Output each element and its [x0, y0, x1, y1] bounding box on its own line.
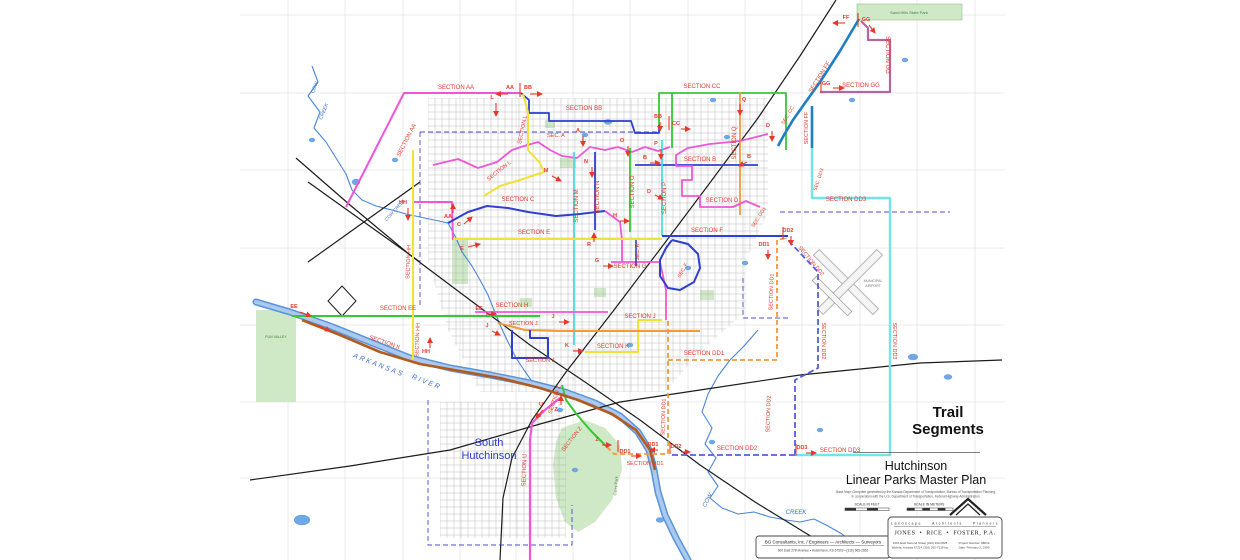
trail-marker-label: C	[457, 222, 461, 228]
scale-meters-seg	[938, 508, 946, 511]
section-label: SECTION GG	[884, 36, 890, 74]
section-label: SECTION HH	[405, 245, 412, 279]
pond	[572, 468, 578, 472]
pond	[724, 135, 730, 139]
section-label: SECTION FF	[804, 111, 810, 144]
trail-marker-label: DD1	[647, 442, 658, 448]
trail-marker-label: GG	[822, 81, 831, 87]
map-text: South	[475, 437, 504, 449]
trail-marker-arrow	[468, 244, 480, 247]
section-label: SECTION D	[706, 198, 739, 204]
jrf-project-number: Project Number: 98013	[959, 541, 990, 545]
map-text: CREEK	[786, 510, 808, 516]
trail-section-DD3	[795, 148, 890, 455]
map-text: MUNICIPAL	[864, 279, 883, 283]
jrf-name: JONES • RICE • FOSTER, P.A.	[894, 530, 995, 537]
trail-marker-label: D	[647, 189, 651, 195]
scale-meters-seg	[922, 508, 930, 511]
section-label: SECTION U	[521, 454, 528, 487]
trail-marker-label: EE	[475, 306, 483, 312]
north-arrow-icon	[950, 499, 986, 515]
section-label: SECTION DD1	[684, 351, 725, 357]
map-text: CREEK	[318, 102, 330, 121]
section-label: SECTION DD3	[820, 448, 861, 454]
pond	[656, 518, 664, 523]
trail-marker-label: DD1	[758, 242, 769, 248]
trail-marker-label: DD3	[796, 445, 807, 451]
section-label: SECTION BB	[566, 106, 602, 112]
plan-title-city: Hutchinson	[885, 459, 948, 473]
trail-section-A	[433, 142, 670, 168]
trail-marker-label: AA	[506, 85, 514, 91]
section-label: SECTION EE	[380, 306, 416, 312]
section-label: SEC. DD3	[813, 168, 826, 192]
trail-section-AA	[413, 202, 453, 240]
pond	[908, 354, 918, 360]
scale-feet-label: SCALE IN FEET	[854, 503, 879, 507]
map-text: RIVER	[411, 374, 443, 392]
pond	[709, 440, 715, 444]
pond	[710, 98, 716, 102]
section-label: SECTION DD2	[820, 323, 826, 360]
trail-section-C	[448, 206, 605, 223]
bg-consultants-address: 600 East 27th Avenue • Hutchinson, KS 67…	[778, 549, 869, 553]
park-area	[700, 290, 714, 300]
section-label: SECTION C	[502, 197, 535, 203]
pond	[742, 261, 748, 265]
section-label: SECTION FF	[808, 60, 832, 94]
jrf-tagline: Landscape Architects Planners	[891, 522, 999, 526]
map-text: Sand Hills State Park	[890, 10, 928, 15]
section-label: SEC. CC	[780, 105, 796, 126]
trail-marker-label: FF	[843, 15, 850, 21]
trail-marker-label: J	[485, 323, 488, 329]
base-map-note-2: in cooperation with the U.S. Department …	[852, 495, 981, 499]
section-label: SECTION P	[662, 182, 668, 214]
section-label: SECTION DD2	[717, 446, 758, 452]
trail-marker-label: HH	[399, 200, 407, 206]
trail-marker-label: M	[544, 168, 549, 174]
section-label: SEC. A	[547, 133, 565, 139]
trail-marker-label: DD2	[670, 444, 681, 450]
section-label: SECTION Q	[732, 126, 738, 159]
trail-marker-label: P	[654, 141, 658, 147]
section-label: SECTION AA	[396, 123, 418, 158]
trail-marker-label: EE	[290, 304, 298, 310]
trail-marker-label: D	[766, 123, 770, 129]
section-label: SECTION G	[613, 264, 646, 270]
section-label: SECTION DD3	[826, 197, 867, 203]
trail-section-BB	[521, 93, 659, 133]
trail-marker-label: HH	[422, 349, 430, 355]
section-label: SECTION DD1	[768, 273, 775, 310]
trail-marker-arrow	[464, 217, 472, 224]
section-label: SEC. F	[677, 262, 690, 279]
section-label: SECTION H	[496, 303, 529, 309]
trail-marker-arrow	[552, 176, 561, 181]
trail-marker-label: CC	[672, 121, 680, 127]
pond	[849, 98, 855, 102]
pond	[557, 408, 563, 412]
plan-title-name: Linear Parks Master Plan	[846, 473, 986, 487]
trail-marker-label: E	[460, 246, 464, 252]
pond	[294, 515, 310, 525]
trail-marker-label: K	[565, 343, 569, 349]
section-label: SECTION DD1	[627, 461, 664, 467]
map-text: AIRPORT	[865, 284, 881, 288]
map-title-line2: Segments	[912, 421, 984, 438]
trail-marker-label: DD1	[619, 449, 630, 455]
jrf-date: Date: February 2, 1999	[959, 546, 990, 550]
creek	[702, 330, 866, 558]
trail-marker-label: G	[595, 258, 599, 264]
base-map-note-1: Base Map: Computer generated by the Kans…	[836, 490, 996, 494]
park-area	[256, 310, 296, 402]
scale-feet-seg	[845, 508, 856, 511]
pond	[392, 158, 398, 162]
pond	[817, 428, 823, 432]
trail-marker-label: BB	[524, 85, 532, 91]
trail-marker-arrow	[869, 25, 875, 33]
section-label: SECTION DD3	[891, 323, 897, 360]
map-text: FUN VALLEY	[265, 335, 287, 339]
map-text: Hutchinson	[461, 450, 516, 462]
section-label: SECTION F	[691, 228, 723, 234]
map-title-line1: Trail	[933, 404, 964, 421]
section-label: SECTION N	[595, 181, 601, 214]
section-label: SECTION DD2	[765, 395, 772, 432]
map-text: COW	[310, 80, 321, 95]
trail-marker-label: BB	[654, 114, 662, 120]
trail-marker-label: H	[613, 213, 617, 219]
map-text: Carey Park	[613, 476, 619, 495]
section-label: SECTION J.	[509, 321, 540, 327]
city-limit	[743, 278, 790, 318]
section-label: SECTION J	[526, 358, 555, 364]
section-label: SECTION E	[518, 230, 550, 236]
pond	[902, 58, 908, 62]
section-label: SECTION DD1	[660, 398, 667, 435]
bg-consultants-name: BG Consultants, Inc. / Engineers — Archi…	[765, 540, 882, 545]
trail-section-G	[611, 262, 666, 320]
arkansas-river	[256, 302, 688, 560]
trail-section-L	[484, 94, 544, 196]
section-label: SECTION O	[630, 175, 636, 208]
park-carey	[553, 420, 622, 532]
map-canvas: SouthHutchinsonARKANSASRIVERCOWCREEKCOW …	[0, 0, 1240, 560]
trail-section-GG	[820, 21, 890, 92]
scale-meters-seg	[907, 508, 915, 511]
section-label: SECTION HH	[414, 323, 421, 357]
pond	[309, 138, 315, 142]
scale-feet-seg	[867, 508, 878, 511]
section-label: SECTION M	[574, 189, 580, 222]
map-page: SouthHutchinsonARKANSASRIVERCOWCREEKCOW …	[0, 0, 1240, 560]
trail-marker-label: Q	[742, 97, 747, 103]
arkansas-river-fill	[256, 302, 688, 560]
trail-marker-label: AA	[444, 214, 452, 220]
section-label: SECTION CC	[683, 84, 721, 90]
pond	[944, 375, 952, 380]
trail-marker-arrow	[492, 331, 500, 335]
trail-marker-label: A	[576, 128, 580, 134]
trail-marker-label: O	[620, 138, 625, 144]
trail-marker-label: J	[551, 314, 554, 320]
section-label: SECTION GG	[842, 83, 880, 89]
section-label: SECTION B	[684, 157, 716, 163]
jrf-address-2: Wichita, Kansas 67214 (316) 262-7319 fax	[892, 546, 949, 550]
section-label: SECTION AA	[438, 85, 474, 91]
trail-marker-label: B	[643, 155, 647, 161]
section-label: SECTION K	[597, 344, 629, 350]
section-label: SECTION J	[624, 314, 655, 320]
trail-marker-label: R	[587, 242, 591, 248]
section-label: SEC. R	[635, 243, 641, 260]
scale-meters-label: SCALE IN METERS	[914, 503, 945, 507]
jrf-address-1: 1415 East Second Street (316) 262-0525	[893, 541, 948, 545]
trail-marker-label: B	[747, 154, 751, 160]
trail-marker-label: N	[584, 159, 588, 165]
trail-marker-label: DD2	[782, 228, 793, 234]
trail-marker-label: U	[539, 402, 543, 408]
rail-diamond	[328, 286, 356, 316]
trail-marker-label: GG	[862, 17, 871, 23]
park-area	[594, 288, 606, 297]
section-label: SEC. DD1	[750, 206, 767, 229]
